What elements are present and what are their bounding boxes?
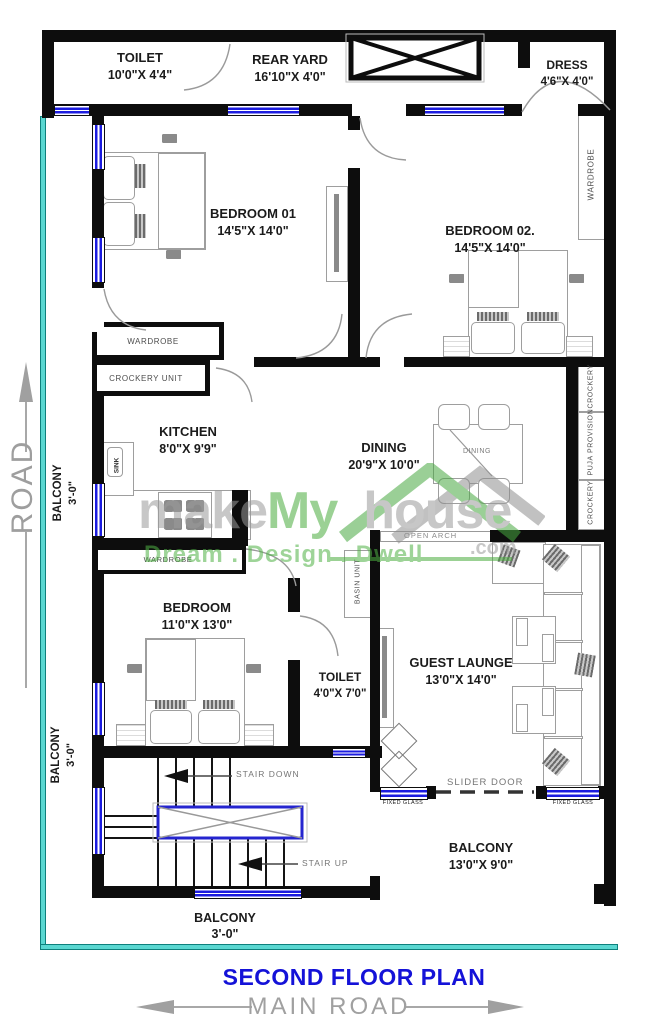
room-name: BEDROOM 01 — [183, 206, 323, 223]
room-label-kitchen: KITCHEN 8'0"X 9'9" — [128, 424, 248, 458]
basin-unit-label: BASIN UNIT — [355, 550, 362, 614]
sink-label: SINK — [114, 441, 121, 491]
room-dims: 20'9"X 10'0" — [348, 458, 419, 472]
room-dims: 3'-0" — [67, 481, 79, 505]
fixed-glass-label: FIXED GLASS — [380, 800, 426, 806]
crockery-label: CROCKERY — [588, 479, 595, 527]
floor-plan-page: WARDROBE CROCKERY UNIT SINK DINING WARDR… — [0, 0, 648, 1024]
room-label-balcony-left-low: BALCONY 3'-0" — [49, 707, 79, 803]
room-label-balcony-bottom: BALCONY 3'-0" — [165, 910, 285, 943]
crockery-unit-label: CROCKERY UNIT — [96, 374, 196, 383]
room-label-balcony-right: BALCONY 13'0"X 9'0" — [411, 840, 551, 874]
room-dims: 8'0"X 9'9" — [159, 442, 216, 456]
room-dims: 4'6"X 4'0" — [541, 76, 594, 88]
room-name: DINING — [324, 440, 444, 457]
room-label-bedroom01: BEDROOM 01 14'5"X 14'0" — [183, 206, 323, 240]
room-dims: 4'0"X 7'0" — [314, 688, 367, 700]
room-name: KITCHEN — [128, 424, 248, 441]
road-label: ROAD — [6, 432, 40, 542]
room-name: BEDROOM — [137, 600, 257, 617]
fixed-glass-label: FIXED GLASS — [548, 800, 598, 806]
slider-door-label: SLIDER DOOR — [447, 777, 523, 788]
room-dims: 3'-0" — [212, 927, 239, 941]
room-label-dress: DRESS 4'6"X 4'0" — [528, 58, 606, 90]
room-label-bedroom3: BEDROOM 11'0"X 13'0" — [137, 600, 257, 634]
puja-provision-label: PUJA PROVISION — [588, 412, 595, 476]
open-arch-label: OPEN ARCH — [404, 531, 457, 540]
room-dims: 14'5"X 14'0" — [217, 224, 288, 238]
stair-up-label: STAIR UP — [302, 858, 349, 868]
room-name: TOILET — [294, 670, 386, 686]
wardrobe-label: WARDROBE — [98, 555, 238, 564]
room-name: GUEST LAUNGE — [391, 655, 531, 672]
room-name: BALCONY — [411, 840, 551, 857]
room-name: BALCONY — [165, 910, 285, 926]
room-name: REAR YARD — [234, 52, 346, 69]
room-dims: 3'-0" — [65, 743, 77, 767]
plan-title: SECOND FLOOR PLAN — [174, 964, 534, 991]
room-dims: 10'0"X 4'4" — [108, 68, 172, 82]
room-label-balcony-left-up: BALCONY 3'-0" — [51, 445, 81, 541]
room-name: BALCONY — [52, 465, 64, 522]
room-dims: 14'5"X 14'0" — [454, 241, 525, 255]
room-dims: 16'10"X 4'0" — [254, 70, 325, 84]
room-dims: 11'0"X 13'0" — [162, 618, 233, 632]
main-road-label: MAIN ROAD — [229, 993, 429, 1021]
room-label-rear-yard: REAR YARD 16'10"X 4'0" — [234, 52, 346, 86]
room-dims: 13'0"X 14'0" — [425, 673, 496, 687]
room-name: BALCONY — [50, 727, 62, 784]
wardrobe-label: WARDROBE — [587, 115, 596, 235]
room-name: BEDROOM 02. — [420, 223, 560, 240]
room-label-guest-launge: GUEST LAUNGE 13'0"X 14'0" — [391, 655, 531, 689]
room-dims: 13'0"X 9'0" — [449, 858, 513, 872]
room-name: TOILET — [85, 50, 195, 67]
room-name: DRESS — [528, 58, 606, 74]
crockery-label: CROCKERY — [588, 365, 595, 409]
dining-table-label: DINING — [447, 448, 507, 455]
room-label-toilet-small: TOILET 4'0"X 7'0" — [294, 670, 386, 702]
room-label-dining: DINING 20'9"X 10'0" — [324, 440, 444, 474]
wardrobe-label: WARDROBE — [96, 337, 210, 346]
stair-down-label: STAIR DOWN — [236, 769, 300, 779]
room-label-bedroom02: BEDROOM 02. 14'5"X 14'0" — [420, 223, 560, 257]
room-label-toilet-top: TOILET 10'0"X 4'4" — [85, 50, 195, 84]
